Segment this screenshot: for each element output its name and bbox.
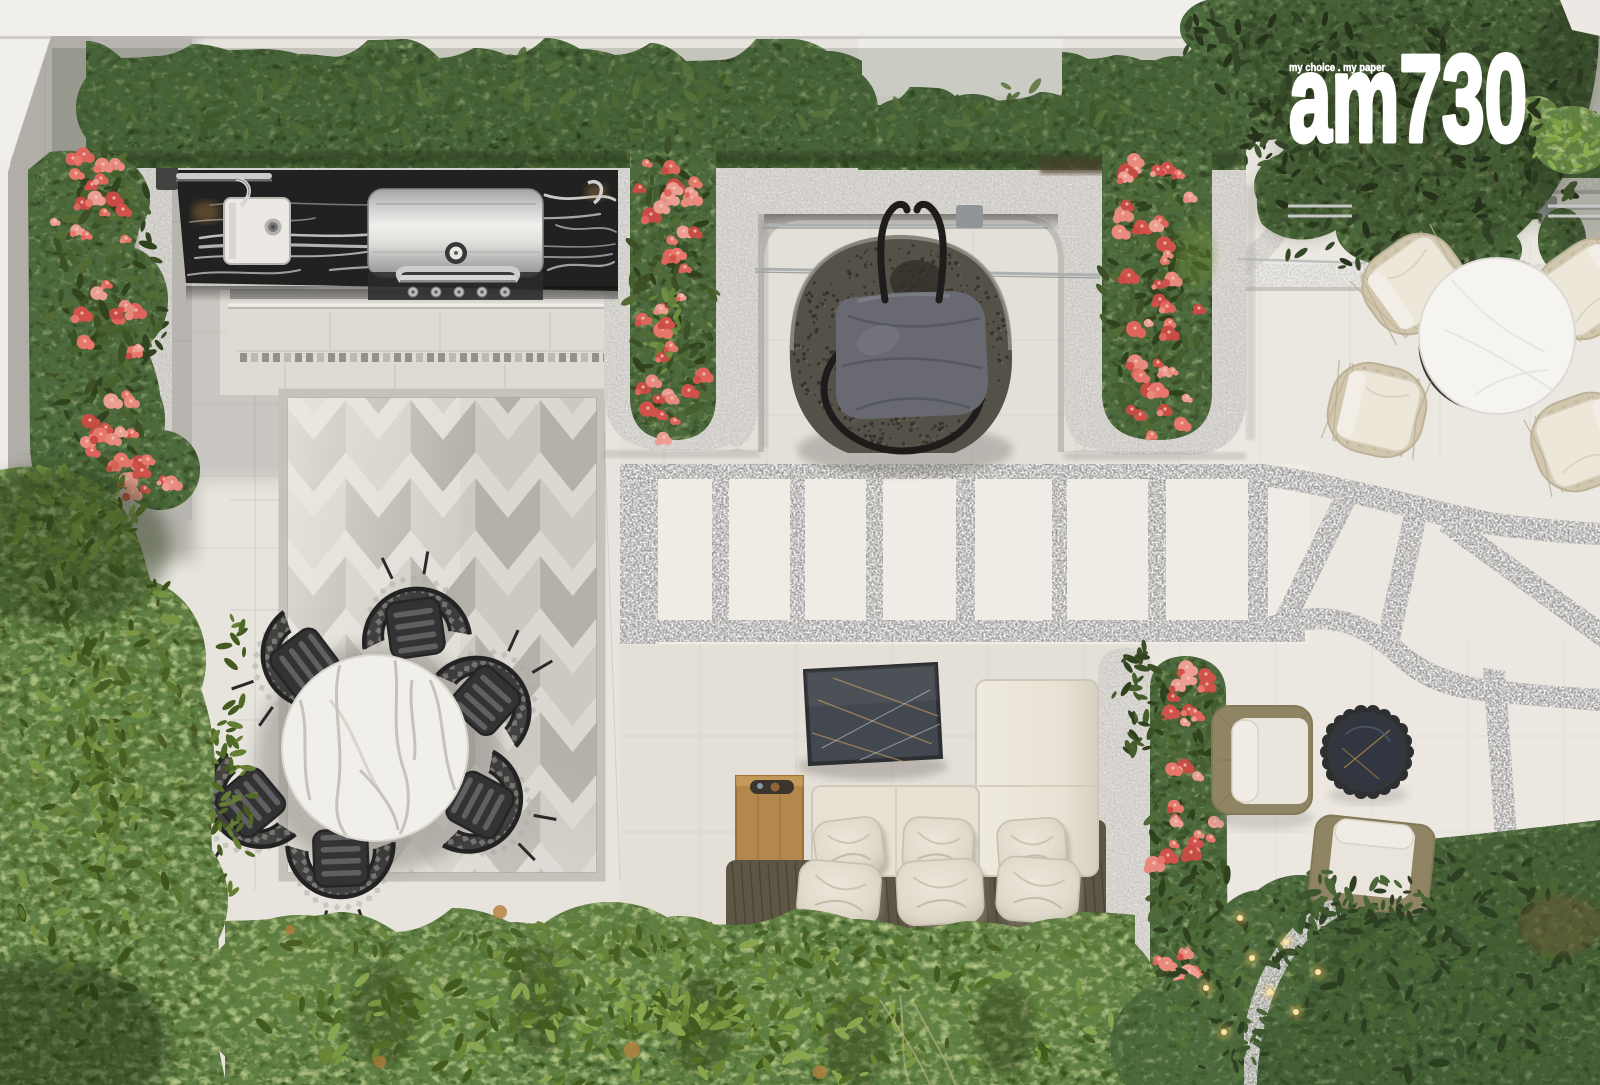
svg-text:am730: am730 [1289,31,1527,168]
